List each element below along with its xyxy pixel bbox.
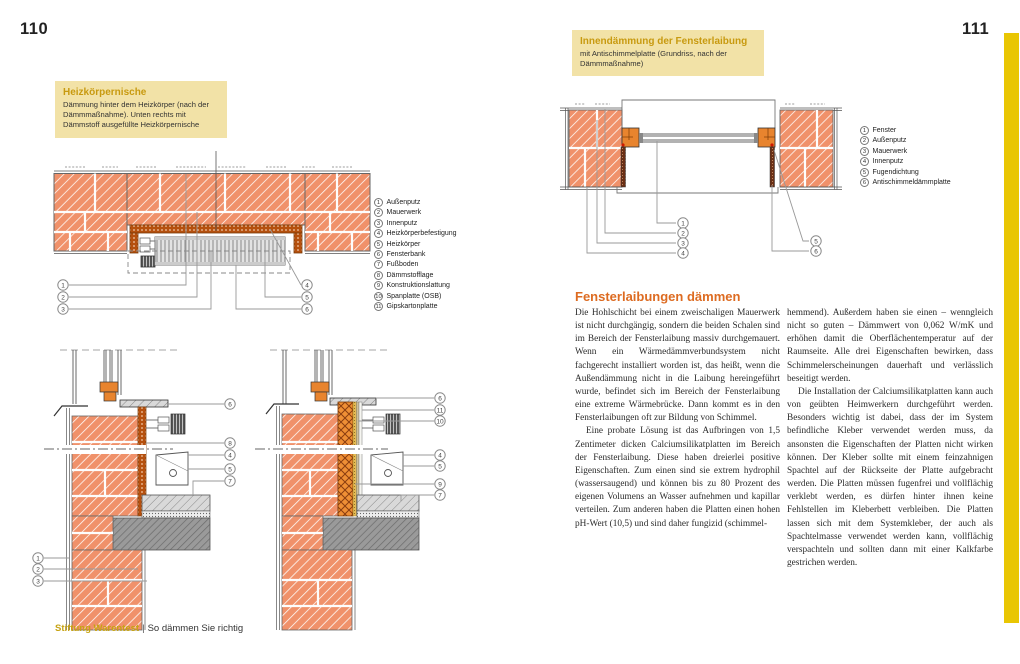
svg-text:2: 2 bbox=[36, 566, 40, 573]
svg-text:2: 2 bbox=[61, 294, 65, 301]
diagram-radiator-niche-section: 1 2 3 4 5 6 bbox=[40, 148, 380, 320]
callout-5: 5 bbox=[302, 292, 312, 302]
svg-text:3: 3 bbox=[36, 578, 40, 585]
callout-3: 3 bbox=[33, 576, 43, 586]
article-paragraph: Die Installation der Calciumsilikatplatt… bbox=[787, 386, 993, 570]
svg-text:5: 5 bbox=[814, 238, 818, 245]
footer-book-title: So dämmen Sie richtig bbox=[148, 623, 244, 634]
callout-2: 2 bbox=[58, 292, 68, 302]
page-number-left: 110 bbox=[20, 20, 48, 39]
info-box-body: Dämmung hinter dem Heizkörper (nach der … bbox=[63, 100, 219, 131]
svg-text:7: 7 bbox=[438, 492, 442, 499]
legend-item: 4Innenputz bbox=[860, 157, 951, 166]
article-heading: Fensterlaibungen dämmen bbox=[575, 289, 740, 304]
legend-number: 4 bbox=[860, 157, 869, 166]
svg-text:7: 7 bbox=[228, 478, 232, 485]
callout-4: 4 bbox=[435, 450, 445, 460]
callout-6: 6 bbox=[435, 393, 445, 403]
legend-item: 6Fensterbank bbox=[374, 250, 457, 259]
footer: Stiftung Warentest|So dämmen Sie richtig bbox=[55, 623, 243, 634]
legend-item: 3Innenputz bbox=[374, 219, 457, 228]
legend-label: Konstruktionslattung bbox=[387, 282, 450, 289]
legend-label: Innenputz bbox=[387, 220, 418, 227]
svg-text:5: 5 bbox=[305, 294, 309, 301]
svg-text:3: 3 bbox=[61, 306, 65, 313]
legend-number: 3 bbox=[860, 147, 869, 156]
legend-item: 8Dämmstofflage bbox=[374, 271, 457, 280]
svg-text:6: 6 bbox=[228, 401, 232, 408]
callout-7: 7 bbox=[435, 490, 445, 500]
legend-item: 3Mauerwerk bbox=[860, 147, 951, 156]
callout-1: 1 bbox=[58, 280, 68, 290]
svg-text:2: 2 bbox=[681, 230, 685, 237]
diagram-window-jamb-plan: 1 2 3 4 5 6 bbox=[555, 93, 865, 265]
footer-publisher: Stiftung Warentest bbox=[55, 623, 139, 634]
legend-number: 6 bbox=[860, 178, 869, 187]
legend-label: Fensterbank bbox=[387, 251, 426, 258]
legend-number: 10 bbox=[374, 292, 383, 301]
legend-item: 10Spanplatte (OSB) bbox=[374, 292, 457, 301]
legend-label: Mauerwerk bbox=[387, 209, 422, 216]
legend-right: 1Fenster 2Außenputz 3Mauerwerk 4Innenput… bbox=[860, 126, 951, 188]
svg-text:6: 6 bbox=[305, 306, 309, 313]
callout-1: 1 bbox=[678, 218, 688, 228]
legend-label: Heizkörperbefestigung bbox=[387, 230, 457, 237]
legend-number: 5 bbox=[374, 240, 383, 249]
svg-text:1: 1 bbox=[681, 220, 685, 227]
legend-item: 2Mauerwerk bbox=[374, 208, 457, 217]
info-box-fensterlaibung: Innendämmung der Fensterlaibung mit Anti… bbox=[572, 30, 764, 76]
legend-item: 5Heizkörper bbox=[374, 240, 457, 249]
legend-item: 5Fugendichtung bbox=[860, 168, 951, 177]
svg-text:10: 10 bbox=[436, 418, 444, 425]
page-number-right: 111 bbox=[962, 20, 989, 39]
legend-label: Außenputz bbox=[873, 137, 907, 144]
legend-number: 2 bbox=[374, 208, 383, 217]
legend-item: 1Außenputz bbox=[374, 198, 457, 207]
legend-item: 4Heizkörperbefestigung bbox=[374, 229, 457, 238]
callout-3: 3 bbox=[678, 238, 688, 248]
callout-2: 2 bbox=[33, 564, 43, 574]
svg-text:3: 3 bbox=[681, 240, 685, 247]
svg-text:9: 9 bbox=[438, 481, 442, 488]
legend-number: 1 bbox=[374, 198, 383, 207]
legend-number: 4 bbox=[374, 229, 383, 238]
legend-item: 7Fußboden bbox=[374, 260, 457, 269]
svg-text:1: 1 bbox=[61, 282, 65, 289]
callout-1: 1 bbox=[33, 553, 43, 563]
book-spread: 110 Heizkörpernische Dämmung hinter dem … bbox=[0, 0, 1020, 664]
legend-label: Innenputz bbox=[873, 158, 904, 165]
svg-text:5: 5 bbox=[228, 466, 232, 473]
diagram-sill-section-after: 6 11 10 4 5 9 7 bbox=[233, 338, 468, 634]
footer-separator: | bbox=[139, 623, 147, 634]
legend-label: Dämmstofflage bbox=[387, 272, 434, 279]
chapter-edge-tab bbox=[1004, 33, 1019, 623]
svg-text:4: 4 bbox=[438, 452, 442, 459]
article-paragraph: hemmend). Außerdem haben sie einen – wen… bbox=[787, 307, 993, 386]
legend-label: Fenster bbox=[873, 127, 897, 134]
info-box-heizkoerpernische: Heizkörpernische Dämmung hinter dem Heiz… bbox=[55, 81, 227, 138]
svg-text:8: 8 bbox=[228, 440, 232, 447]
legend-label: Spanplatte (OSB) bbox=[387, 293, 442, 300]
legend-number: 5 bbox=[860, 168, 869, 177]
callout-4: 4 bbox=[302, 280, 312, 290]
legend-number: 11 bbox=[374, 302, 383, 311]
info-box-title: Innendämmung der Fensterlaibung bbox=[580, 36, 756, 47]
legend-number: 3 bbox=[374, 219, 383, 228]
legend-label: Mauerwerk bbox=[873, 148, 908, 155]
legend-item: 1Fenster bbox=[860, 126, 951, 135]
legend-label: Außenputz bbox=[387, 199, 421, 206]
legend-label: Antischimmeldämmplatte bbox=[873, 179, 951, 186]
legend-item: 9Konstruktionslattung bbox=[374, 281, 457, 290]
callout-5: 5 bbox=[811, 236, 821, 246]
legend-number: 1 bbox=[860, 126, 869, 135]
legend-label: Heizkörper bbox=[387, 241, 421, 248]
legend-number: 9 bbox=[374, 281, 383, 290]
svg-text:4: 4 bbox=[228, 452, 232, 459]
callout-11: 11 bbox=[435, 405, 445, 415]
callout-2: 2 bbox=[678, 228, 688, 238]
legend-label: Fußboden bbox=[387, 261, 419, 268]
legend-number: 7 bbox=[374, 260, 383, 269]
svg-text:5: 5 bbox=[438, 463, 442, 470]
svg-text:6: 6 bbox=[438, 395, 442, 402]
diagram-sill-section-before: 6 8 4 5 7 1 2 3 bbox=[28, 338, 240, 634]
article-paragraph: Eine probate Lösung ist das Aufbringen v… bbox=[575, 425, 780, 530]
callout-10: 10 bbox=[435, 416, 445, 426]
legend-number: 2 bbox=[860, 136, 869, 145]
legend-number: 6 bbox=[374, 250, 383, 259]
info-box-body: mit Antischimmelplatte (Grundriss, nach … bbox=[580, 49, 756, 69]
callout-4: 4 bbox=[678, 248, 688, 258]
svg-text:4: 4 bbox=[305, 282, 309, 289]
callout-9: 9 bbox=[435, 479, 445, 489]
article-column-1: Die Hohlschicht bei einem zweischaligen … bbox=[575, 307, 780, 531]
info-box-title: Heizkörpernische bbox=[63, 87, 219, 98]
callout-6: 6 bbox=[302, 304, 312, 314]
legend-label: Gipskartonplatte bbox=[387, 303, 438, 310]
svg-text:6: 6 bbox=[814, 248, 818, 255]
legend-item: 2Außenputz bbox=[860, 136, 951, 145]
svg-text:11: 11 bbox=[437, 407, 444, 414]
article-column-2: hemmend). Außerdem haben sie einen – wen… bbox=[787, 307, 993, 570]
callout-6: 6 bbox=[811, 246, 821, 256]
legend-left: 1Außenputz 2Mauerwerk 3Innenputz 4Heizkö… bbox=[374, 198, 457, 312]
article-paragraph: Die Hohlschicht bei einem zweischaligen … bbox=[575, 307, 780, 425]
legend-number: 8 bbox=[374, 271, 383, 280]
legend-label: Fugendichtung bbox=[873, 169, 919, 176]
legend-item: 11Gipskartonplatte bbox=[374, 302, 457, 311]
svg-text:1: 1 bbox=[36, 555, 40, 562]
legend-item: 6Antischimmeldämmplatte bbox=[860, 178, 951, 187]
svg-text:4: 4 bbox=[681, 250, 685, 257]
callout-5: 5 bbox=[435, 461, 445, 471]
callout-3: 3 bbox=[58, 304, 68, 314]
